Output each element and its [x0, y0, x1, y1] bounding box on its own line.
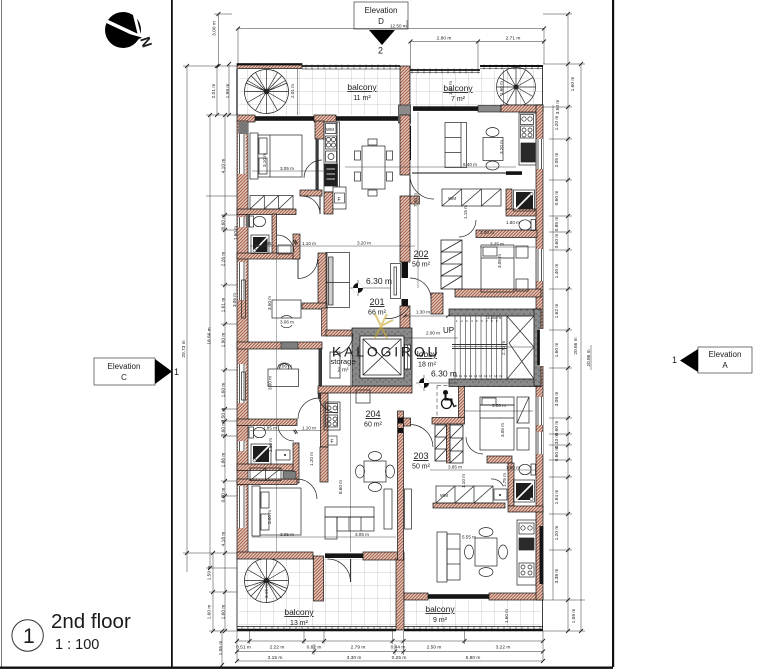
svg-text:1 : 100: 1 : 100: [55, 637, 99, 653]
svg-text:3.10 m: 3.10 m: [262, 153, 267, 167]
svg-text:3.05 m: 3.05 m: [355, 532, 369, 537]
svg-text:1: 1: [23, 625, 35, 648]
svg-text:1.80 m: 1.80 m: [268, 438, 273, 452]
svg-text:WM: WM: [326, 127, 334, 132]
svg-text:2.05 m: 2.05 m: [554, 153, 560, 168]
svg-text:2.22 m: 2.22 m: [270, 645, 285, 651]
svg-text:2 m²: 2 m²: [338, 368, 349, 374]
svg-text:3.00 m: 3.00 m: [492, 403, 506, 408]
svg-text:11: 11: [459, 374, 462, 378]
svg-text:1.10 m: 1.10 m: [461, 474, 466, 488]
svg-text:2.71 m: 2.71 m: [506, 36, 521, 42]
svg-text:6.30 m: 6.30 m: [431, 369, 457, 379]
svg-text:1.85: 1.85: [263, 241, 272, 246]
svg-text:1: 1: [174, 367, 179, 377]
svg-text:1.20 m: 1.20 m: [554, 526, 560, 541]
svg-text:3.08 m: 3.08 m: [554, 392, 560, 407]
svg-text:3.05 m: 3.05 m: [497, 254, 502, 268]
svg-text:17: 17: [489, 374, 493, 378]
svg-text:3.05 m: 3.05 m: [280, 532, 294, 537]
svg-text:18: 18: [494, 374, 498, 378]
svg-text:1.86 m: 1.86 m: [221, 453, 227, 468]
svg-text:13 m²: 13 m²: [290, 620, 309, 627]
svg-text:3.25 m: 3.25 m: [490, 242, 504, 247]
svg-text:Elevation: Elevation: [709, 350, 742, 359]
svg-text:13: 13: [469, 374, 473, 378]
svg-text:20.66 m: 20.66 m: [573, 337, 579, 354]
svg-text:1.30 m: 1.30 m: [416, 310, 430, 315]
svg-text:1.59 m: 1.59 m: [207, 566, 213, 581]
svg-text:8.60 m: 8.60 m: [338, 480, 343, 494]
svg-text:1.60 m: 1.60 m: [570, 77, 576, 92]
svg-text:1.60 m: 1.60 m: [554, 343, 560, 358]
svg-text:1: 1: [672, 355, 677, 365]
svg-text:3.06 m: 3.06 m: [278, 364, 292, 369]
svg-text:WM: WM: [440, 493, 448, 498]
svg-text:3.00 m: 3.00 m: [267, 510, 272, 524]
svg-text:0.85 m: 0.85 m: [554, 217, 560, 232]
svg-text:203: 203: [413, 451, 428, 461]
svg-text:2.01 m: 2.01 m: [290, 84, 295, 98]
svg-text:3.20 m: 3.20 m: [357, 241, 371, 246]
svg-text:0.33 m: 0.33 m: [554, 434, 560, 449]
svg-text:12.50 m: 12.50 m: [390, 24, 407, 29]
svg-text:1.94 m: 1.94 m: [554, 490, 560, 505]
svg-text:3.50 m: 3.50 m: [555, 100, 561, 115]
svg-text:20.73 m: 20.73 m: [181, 340, 187, 357]
svg-text:3.00 m: 3.00 m: [212, 21, 218, 36]
svg-text:6.40 m: 6.40 m: [463, 162, 477, 167]
svg-text:2: 2: [378, 46, 383, 56]
svg-text:0.60 m: 0.60 m: [554, 421, 560, 436]
svg-text:0.60 m: 0.60 m: [221, 422, 227, 437]
svg-text:3.26 m: 3.26 m: [487, 315, 501, 320]
svg-text:3.15 m: 3.15 m: [268, 655, 283, 661]
svg-text:18.56 m: 18.56 m: [207, 327, 213, 344]
svg-text:1.61 m: 1.61 m: [221, 298, 227, 313]
svg-text:66 m²: 66 m²: [368, 310, 387, 317]
svg-text:0.60 m: 0.60 m: [554, 447, 560, 462]
svg-text:2.79 m: 2.79 m: [351, 645, 366, 651]
svg-text:3.38 m: 3.38 m: [554, 569, 560, 584]
svg-text:WM: WM: [448, 196, 456, 201]
svg-text:Elevation: Elevation: [108, 362, 141, 371]
svg-text:5.80 m: 5.80 m: [466, 655, 481, 661]
svg-text:Elevation: Elevation: [365, 6, 398, 15]
svg-text:1.90 m: 1.90 m: [221, 333, 227, 348]
svg-text:1.60 m: 1.60 m: [221, 383, 227, 398]
svg-text:2.70 m: 2.70 m: [501, 341, 506, 355]
svg-text:18 m²: 18 m²: [418, 362, 437, 369]
svg-text:3.50 m: 3.50 m: [267, 296, 272, 310]
svg-text:3.22 m: 3.22 m: [496, 645, 511, 651]
svg-text:3.20 m: 3.20 m: [499, 140, 504, 154]
svg-text:7 m²: 7 m²: [451, 96, 466, 103]
svg-text:1.40 m: 1.40 m: [554, 264, 560, 279]
svg-text:F: F: [331, 439, 334, 445]
svg-text:3.05 m: 3.05 m: [280, 166, 294, 171]
svg-text:balcony: balcony: [284, 607, 314, 617]
svg-text:2.80 m: 2.80 m: [437, 36, 452, 42]
svg-text:1.60 m: 1.60 m: [504, 609, 509, 623]
svg-text:1.80 m: 1.80 m: [506, 465, 520, 470]
svg-text:1.60 m: 1.60 m: [221, 605, 227, 620]
svg-text:60 m²: 60 m²: [364, 422, 383, 429]
svg-text:0.50 m: 0.50 m: [221, 408, 227, 423]
svg-text:1.80 m: 1.80 m: [506, 220, 520, 225]
svg-text:3.00 m: 3.00 m: [480, 230, 494, 235]
svg-text:1.60 m: 1.60 m: [448, 81, 453, 95]
svg-text:16: 16: [484, 374, 488, 378]
svg-text:0.60 m: 0.60 m: [554, 191, 560, 206]
svg-text:KALOGIROU: KALOGIROU: [332, 344, 440, 360]
svg-text:2.00 m: 2.00 m: [426, 331, 440, 336]
svg-text:0.60 m: 0.60 m: [221, 215, 227, 230]
svg-text:3.06 m: 3.06 m: [280, 320, 294, 325]
svg-text:1.10 m: 1.10 m: [302, 241, 316, 246]
svg-text:1.20 m: 1.20 m: [309, 452, 314, 466]
svg-text:1.15 m: 1.15 m: [463, 205, 468, 219]
svg-text:1.80 m: 1.80 m: [256, 237, 261, 251]
svg-text:1.85 m: 1.85 m: [263, 426, 277, 431]
svg-text:50 m²: 50 m²: [412, 464, 431, 471]
svg-text:1.20 m: 1.20 m: [554, 116, 560, 131]
svg-text:1.75 m: 1.75 m: [502, 473, 507, 487]
svg-text:0.82 m: 0.82 m: [307, 645, 322, 651]
svg-text:1.60 m: 1.60 m: [207, 605, 213, 620]
svg-text:balcony: balcony: [425, 604, 455, 614]
svg-text:2.26 m: 2.26 m: [221, 252, 227, 267]
svg-text:1.99 m: 1.99 m: [225, 84, 231, 99]
svg-text:3.19 m: 3.19 m: [264, 584, 269, 598]
svg-text:3.00 m: 3.00 m: [268, 376, 273, 390]
svg-text:9 m²: 9 m²: [433, 617, 448, 624]
svg-text:2.01 m: 2.01 m: [211, 84, 217, 99]
svg-text:3.05 m: 3.05 m: [500, 423, 505, 437]
svg-text:12: 12: [464, 374, 468, 378]
svg-text:4.10 m: 4.10 m: [221, 159, 227, 174]
svg-text:3.65 m: 3.65 m: [448, 465, 462, 470]
svg-text:2.50 m: 2.50 m: [427, 645, 442, 651]
svg-text:UP: UP: [443, 326, 454, 335]
svg-text:0.25 m: 0.25 m: [392, 655, 407, 661]
svg-text:D: D: [378, 17, 384, 26]
svg-text:2nd floor: 2nd floor: [51, 610, 131, 633]
svg-text:204: 204: [365, 409, 380, 419]
svg-text:201: 201: [369, 297, 384, 307]
svg-text:0.44 m: 0.44 m: [391, 645, 406, 651]
svg-text:0.60 m: 0.60 m: [221, 488, 227, 503]
svg-text:11 m²: 11 m²: [353, 95, 371, 102]
svg-text:1.62 m: 1.62 m: [554, 304, 560, 319]
svg-text:202: 202: [413, 249, 428, 259]
svg-text:3.30 m: 3.30 m: [347, 655, 362, 661]
svg-text:20.86 m: 20.86 m: [586, 349, 592, 366]
svg-text:4.18 m: 4.18 m: [221, 532, 227, 547]
svg-text:C: C: [121, 373, 127, 382]
svg-text:1.59 m: 1.59 m: [571, 609, 577, 624]
svg-text:6.30 m: 6.30 m: [366, 276, 392, 286]
svg-text:0.51 m: 0.51 m: [236, 645, 251, 651]
svg-text:5.55 m: 5.55 m: [462, 535, 476, 540]
svg-text:14: 14: [474, 374, 478, 378]
svg-text:7.40 m: 7.40 m: [413, 193, 418, 207]
svg-text:19: 19: [499, 374, 503, 378]
svg-text:1.55 m: 1.55 m: [218, 641, 224, 656]
svg-text:1.10 m: 1.10 m: [302, 426, 316, 431]
svg-text:3.06 m: 3.06 m: [232, 293, 237, 307]
svg-text:15: 15: [479, 374, 483, 378]
svg-text:A: A: [722, 361, 728, 370]
svg-text:1.60 m: 1.60 m: [233, 226, 238, 240]
svg-text:balcony: balcony: [347, 82, 377, 92]
svg-text:0.60 m: 0.60 m: [554, 234, 560, 249]
svg-text:F: F: [338, 197, 341, 203]
svg-text:50 m²: 50 m²: [412, 262, 431, 269]
